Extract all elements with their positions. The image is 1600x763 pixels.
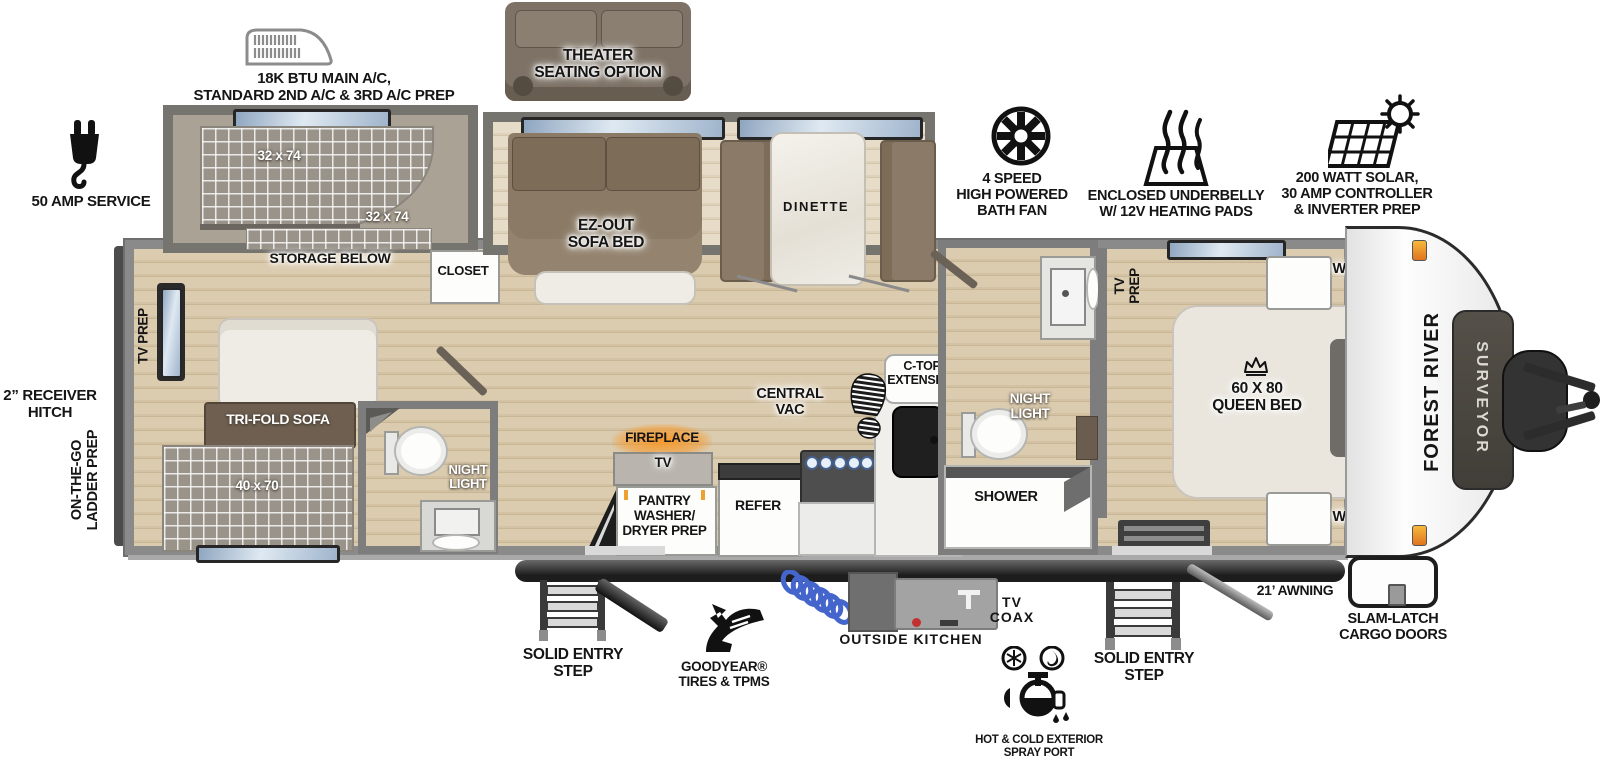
kitchen-cabinet xyxy=(798,502,880,556)
rear-tv xyxy=(157,283,185,381)
rear-window xyxy=(196,545,340,563)
cooktop xyxy=(800,450,878,506)
outside-kitchen-label: OUTSIDE KITCHEN xyxy=(832,632,990,647)
bath-fan-label: 4 SPEED HIGH POWERED BATH FAN xyxy=(953,172,1071,220)
queen-bed-label: 60 X 80 QUEEN BED xyxy=(1196,380,1318,414)
rooftop-ac-icon xyxy=(243,26,335,70)
ladder-prep-label: ON-THE-GO LADDER PREP xyxy=(70,420,102,540)
ac-feature-label: 18K BTU MAIN A/C, STANDARD 2ND A/C & 3RD… xyxy=(163,71,485,104)
rear-vanity xyxy=(420,500,496,552)
tv-label: TV xyxy=(613,456,713,471)
spray-port-label: HOT & COLD EXTERIOR SPRAY PORT xyxy=(972,734,1106,759)
night-light-main-label: NIGHT LIGHT xyxy=(996,392,1064,422)
underbelly-label: ENCLOSED UNDERBELLY W/ 12V HEATING PADS xyxy=(1082,189,1270,221)
ez-sofa-label: EZ-OUT SOFA BED xyxy=(545,217,667,251)
bedroom-doorway xyxy=(1112,546,1212,555)
bunk-upper-size-label: 32 x 74 xyxy=(248,149,310,164)
rear-bed-platform xyxy=(218,318,378,410)
spray-port-icon xyxy=(1000,646,1076,730)
solar-label: 200 WATT SOLAR, 30 AMP CONTROLLER & INVE… xyxy=(1268,171,1446,219)
dinette-bench-left xyxy=(720,140,776,282)
awning-label: 21’ AWNING xyxy=(1243,583,1347,598)
brand-make-label: FOREST RIVER xyxy=(1421,292,1443,492)
tv-prep-rear-label: TV PREP xyxy=(137,291,152,381)
ez-sofa-footrest xyxy=(534,271,696,305)
closet-label: CLOSET xyxy=(430,264,496,278)
receiver-hitch-label: 2” RECEIVER HITCH xyxy=(0,388,102,421)
nightstand-bottom xyxy=(1266,492,1332,546)
entry-step-right-icon xyxy=(1100,582,1188,650)
marker-light-bottom xyxy=(1412,525,1427,546)
dinette-label: DINETTE xyxy=(770,200,862,214)
shower xyxy=(944,465,1092,549)
underbody-compartment xyxy=(848,572,898,632)
storage-below-label: STORAGE BELOW xyxy=(256,251,404,266)
bunk-lower-size-label: 32 x 74 xyxy=(356,210,418,225)
shower-label: SHOWER xyxy=(958,490,1054,506)
pantry-label: PANTRY WASHER/ DRYER PREP xyxy=(616,494,713,539)
bunk-lower-mat xyxy=(246,228,432,250)
power-plug-icon xyxy=(58,118,110,194)
goodyear-label: GOODYEAR® TIRES & TPMS xyxy=(666,660,782,690)
cargo-doors-label: SLAM-LATCH CARGO DOORS xyxy=(1318,612,1468,644)
entry-door-main xyxy=(586,490,618,553)
crown-icon xyxy=(1242,356,1270,376)
marker-light-top xyxy=(1412,240,1427,261)
bedroom-wall xyxy=(1098,248,1107,518)
nightstand-top xyxy=(1266,256,1332,310)
solar-panel-icon xyxy=(1328,94,1420,174)
theater-seating-label: THEATER SEATING OPTION xyxy=(515,47,681,81)
boot-print-icon xyxy=(838,372,896,440)
tv-coax-label: TV COAX xyxy=(982,595,1042,626)
kitchen-sink xyxy=(892,406,944,478)
tri-fold-sofa-label: TRI-FOLD SOFA xyxy=(206,412,350,427)
dinette-bench-right xyxy=(880,140,936,282)
fireplace-label: FIREPLACE xyxy=(613,431,711,446)
floorplan-diagram: 18K BTU MAIN A/C, STANDARD 2ND A/C & 3RD… xyxy=(0,0,1600,763)
ez-sofa xyxy=(508,133,702,275)
goodyear-wingfoot-icon xyxy=(692,594,772,660)
rear-bed-size-label: 40 x 70 xyxy=(226,479,288,494)
interior-step xyxy=(1118,520,1210,548)
tv-prep-bedroom-label: TV PREP xyxy=(1113,264,1143,308)
brand-model-label: SURVEYOR xyxy=(1472,308,1490,488)
main-doorway xyxy=(585,546,665,555)
central-vac-label: CENTRAL VAC xyxy=(745,387,835,419)
heated-underbelly-icon xyxy=(1140,106,1212,188)
bath-cabinet xyxy=(1076,416,1098,460)
amp-service-label: 50 AMP SERVICE xyxy=(26,194,156,211)
rear-bed-mat xyxy=(162,445,354,552)
bath-fan-icon xyxy=(990,105,1052,167)
refer-label: REFER xyxy=(718,498,798,513)
night-light-rear-label: NIGHT LIGHT xyxy=(440,463,496,492)
step-right-label: SOLID ENTRY STEP xyxy=(1080,650,1208,684)
step-left-label: SOLID ENTRY STEP xyxy=(506,646,640,680)
cargo-door xyxy=(1348,556,1438,608)
